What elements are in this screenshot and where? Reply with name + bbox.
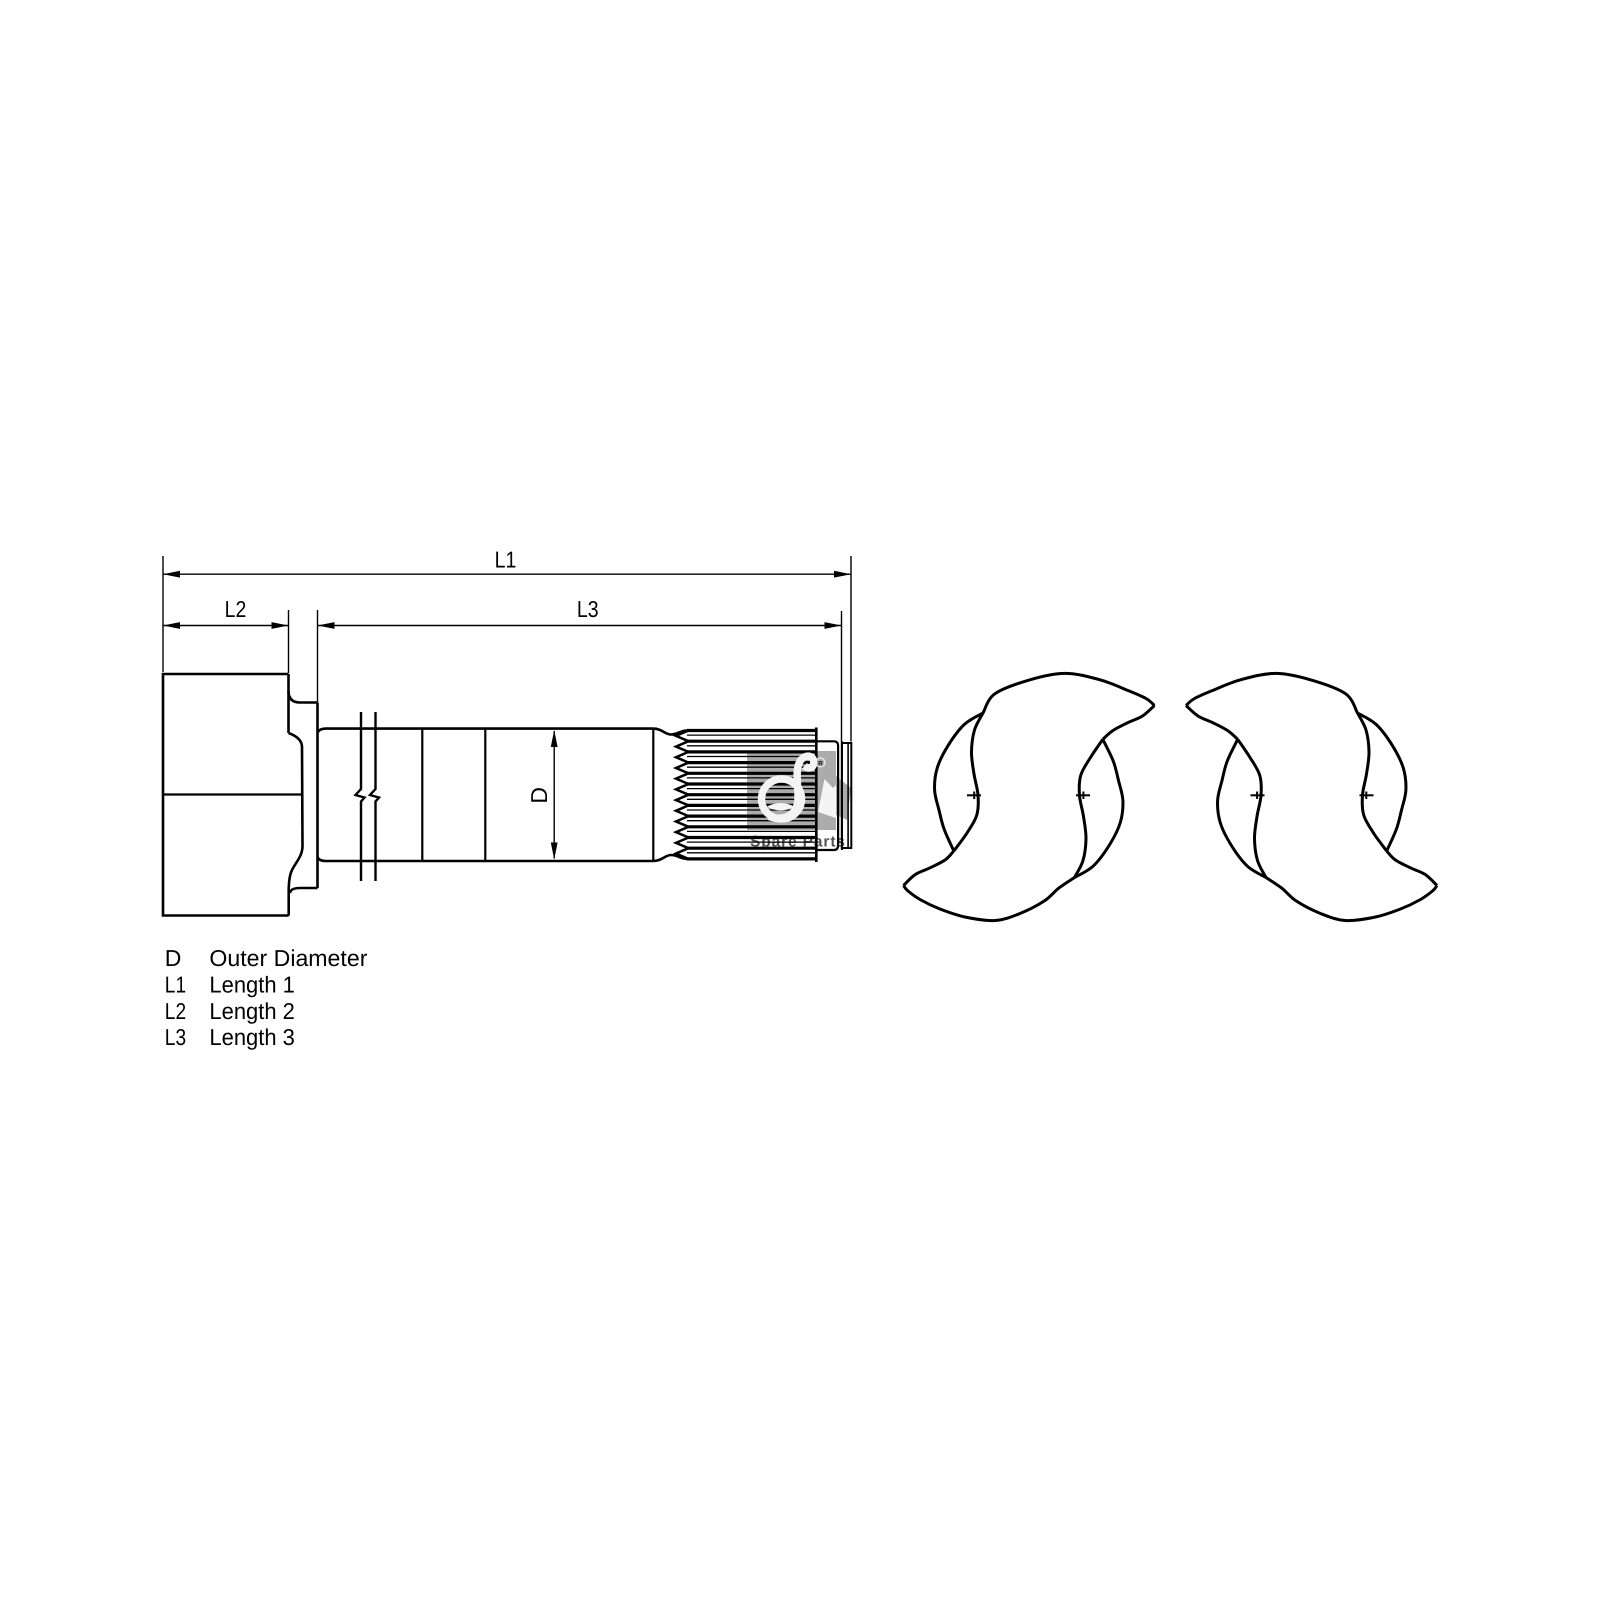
svg-text:L1: L1 [495, 547, 517, 573]
svg-text:Length 1: Length 1 [209, 972, 295, 998]
svg-text:L1: L1 [165, 972, 186, 998]
svg-text:D: D [165, 945, 182, 971]
svg-text:Outer Diameter: Outer Diameter [209, 945, 367, 971]
svg-text:R: R [818, 761, 823, 768]
svg-text:L3: L3 [165, 1024, 186, 1050]
svg-text:L2: L2 [165, 998, 186, 1024]
svg-text:Length 2: Length 2 [209, 998, 295, 1024]
svg-text:D: D [526, 787, 552, 804]
svg-text:L3: L3 [577, 596, 599, 622]
svg-text:Length 3: Length 3 [209, 1024, 295, 1050]
svg-text:Spare Parts: Spare Parts [750, 834, 845, 851]
svg-text:L2: L2 [225, 596, 247, 622]
